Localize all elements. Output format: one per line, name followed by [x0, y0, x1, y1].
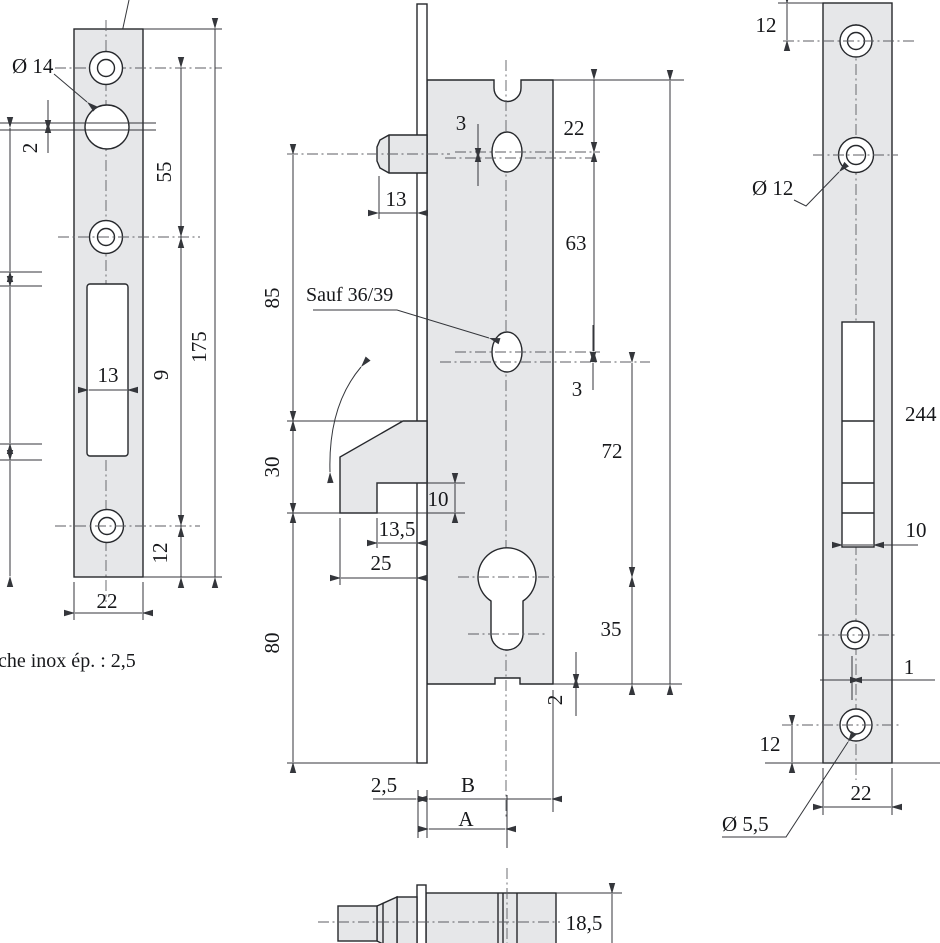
- case-section: [426, 893, 556, 943]
- dia-12-label: Ø 12: [752, 176, 793, 200]
- dim-2-tab-label: 2: [543, 695, 567, 706]
- dim-2-5-label: 2,5: [371, 773, 397, 797]
- dim-22-case-label: 22: [564, 116, 585, 140]
- dim-13-label: 13: [98, 363, 119, 387]
- dim-12-label: 12: [148, 543, 172, 564]
- dim-22-plate-label: 22: [851, 781, 872, 805]
- dim-1-label: 1: [904, 655, 915, 679]
- dim-63-label: 63: [566, 231, 587, 255]
- dim-85-label: 85: [260, 288, 284, 309]
- bolt-hole-dia14: [85, 105, 129, 149]
- dim-9-label: 9: [149, 370, 173, 381]
- dim-A-label: A: [458, 807, 474, 831]
- dim-B-label: B: [461, 773, 475, 797]
- dim-13-5-label: 13,5: [379, 517, 416, 541]
- dim-p2-label: 50: [0, 356, 5, 377]
- strike-plate-view: Ø 14 2 55 9 12 175 13 22 51 50 38 che in…: [0, 0, 222, 672]
- bolt-shaft-section: [338, 906, 377, 941]
- bolt-chamfer: [377, 897, 397, 943]
- dim-72-label: 72: [602, 439, 623, 463]
- dim-175-label: 175: [187, 331, 211, 363]
- lock-case-view: 13 3 22 63 Sauf 36/39 3 72 35 85 30 80 1…: [260, 4, 684, 848]
- dim-p3-label: 38: [0, 468, 5, 489]
- dim-80-label: 80: [260, 633, 284, 654]
- dim-55-label: 55: [152, 162, 176, 183]
- dim-35-label: 35: [601, 617, 622, 641]
- dim-12-bot-label: 12: [760, 732, 781, 756]
- section-view: 18,5: [318, 868, 622, 943]
- dim-p1-label: 51: [0, 207, 5, 228]
- dim-3-top-label: 3: [456, 111, 467, 135]
- dim-25-label: 25: [371, 551, 392, 575]
- note-sauf-label: Sauf 36/39: [306, 284, 393, 306]
- material-caption: che inox ép. : 2,5: [0, 650, 136, 672]
- dim-244-label: 244: [905, 402, 937, 426]
- dim-2-label: 2: [18, 143, 42, 154]
- technical-drawing: Ø 14 2 55 9 12 175 13 22 51 50 38 che in…: [0, 0, 940, 943]
- hook-bolt: [340, 421, 427, 513]
- dim-10-hook-label: 10: [428, 487, 449, 511]
- dia-14-label: Ø 14: [12, 54, 54, 78]
- dim-13-bolt-label: 13: [386, 187, 407, 211]
- dia-5-5-label: Ø 5,5: [722, 812, 769, 836]
- dim-3-mid-label: 3: [572, 377, 583, 401]
- faceplate: [417, 4, 427, 763]
- drawing-canvas: Ø 14 2 55 9 12 175 13 22 51 50 38 che in…: [0, 0, 940, 943]
- dim-30-label: 30: [260, 457, 284, 478]
- dim-18-5-label: 18,5: [566, 911, 603, 935]
- dim-10-slot-label: 10: [906, 518, 927, 542]
- cover-plate-view: 12 Ø 12 244 10 1 12 22 Ø 5,5: [722, 3, 940, 837]
- faceplate-section: [417, 885, 426, 943]
- dim-12-top-label: 12: [756, 13, 777, 37]
- bolt-head-section: [397, 897, 417, 943]
- dim-22-label: 22: [97, 589, 118, 613]
